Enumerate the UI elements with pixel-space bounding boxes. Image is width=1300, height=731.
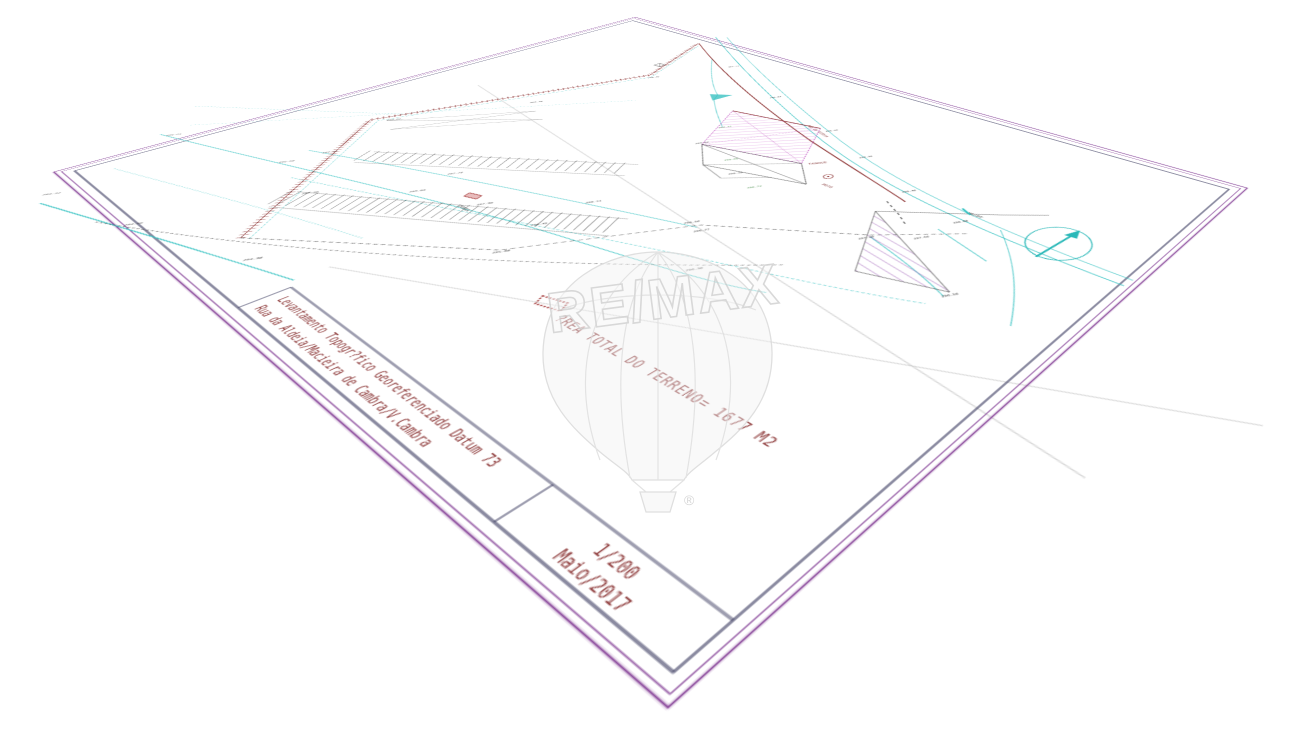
inner-frame: [75, 21, 1230, 673]
boundary-dashed: [96, 83, 969, 556]
spot-elevation: 300.45: [648, 76, 660, 79]
spot-elevation: 298.11: [586, 199, 603, 204]
spot-elevation: 300.40: [825, 129, 839, 133]
violet-hatch-area: [805, 211, 999, 304]
spot-elevation: 295.60: [278, 159, 296, 163]
spot-elevation: 294.56: [123, 221, 146, 227]
terrace-hatching: [215, 91, 722, 315]
tanque-label: TANQUE: [808, 161, 828, 165]
spot-elevation: 299.05: [724, 157, 739, 161]
title-block: Levantamento Topogr?fico Georeferenciado…: [238, 287, 733, 672]
fossa-symbol: [462, 191, 483, 200]
north-compass: [1011, 220, 1106, 268]
spot-elevation: 294.12: [41, 191, 63, 196]
spot-elevation: 301.12: [728, 65, 740, 68]
spot-elevation: 296.50: [940, 291, 960, 298]
spot-elevation: 296.45: [530, 221, 548, 227]
area-annotation: ?REA TOTAL DO TERRENO= 1677 M2: [523, 293, 793, 451]
legend-symbol: [531, 293, 572, 315]
poco-label: PO?O: [820, 183, 834, 189]
spot-elevation: 299.40: [901, 189, 917, 194]
area-total-label: ?REA TOTAL DO TERRENO= 1677 M2: [550, 313, 783, 451]
spot-elevation: 294.98: [242, 256, 265, 262]
spot-elevation: 297.10: [301, 190, 320, 195]
survey-screenshot: Levantamento Topogr?fico Georeferenciado…: [0, 0, 1300, 731]
cyan-marker-triangle: [702, 91, 733, 102]
spot-elevation: 297.66: [913, 235, 931, 241]
spot-elevation: 297.32: [322, 150, 340, 154]
spot-elevation: 295.21: [165, 133, 183, 137]
spot-elevation: 298.72: [747, 184, 763, 189]
survey-sheet: Levantamento Topogr?fico Georeferenciado…: [53, 17, 1248, 709]
spot-elevation: 296.77: [693, 227, 711, 233]
spot-elevation: 297.90: [476, 201, 494, 206]
spot-elevation: 297.75: [447, 171, 464, 176]
construction-lines: [187, 85, 1279, 731]
spot-elevation: 295.88: [492, 248, 512, 254]
spot-elevation: 296.04: [409, 188, 427, 193]
spot-elevation: 299.15: [728, 171, 744, 175]
outer-frame-inner-line: [61, 18, 1240, 694]
spot-elevation: 299.78: [530, 100, 544, 103]
building: [531, 63, 900, 199]
spot-elevation: 296.90: [685, 266, 704, 273]
